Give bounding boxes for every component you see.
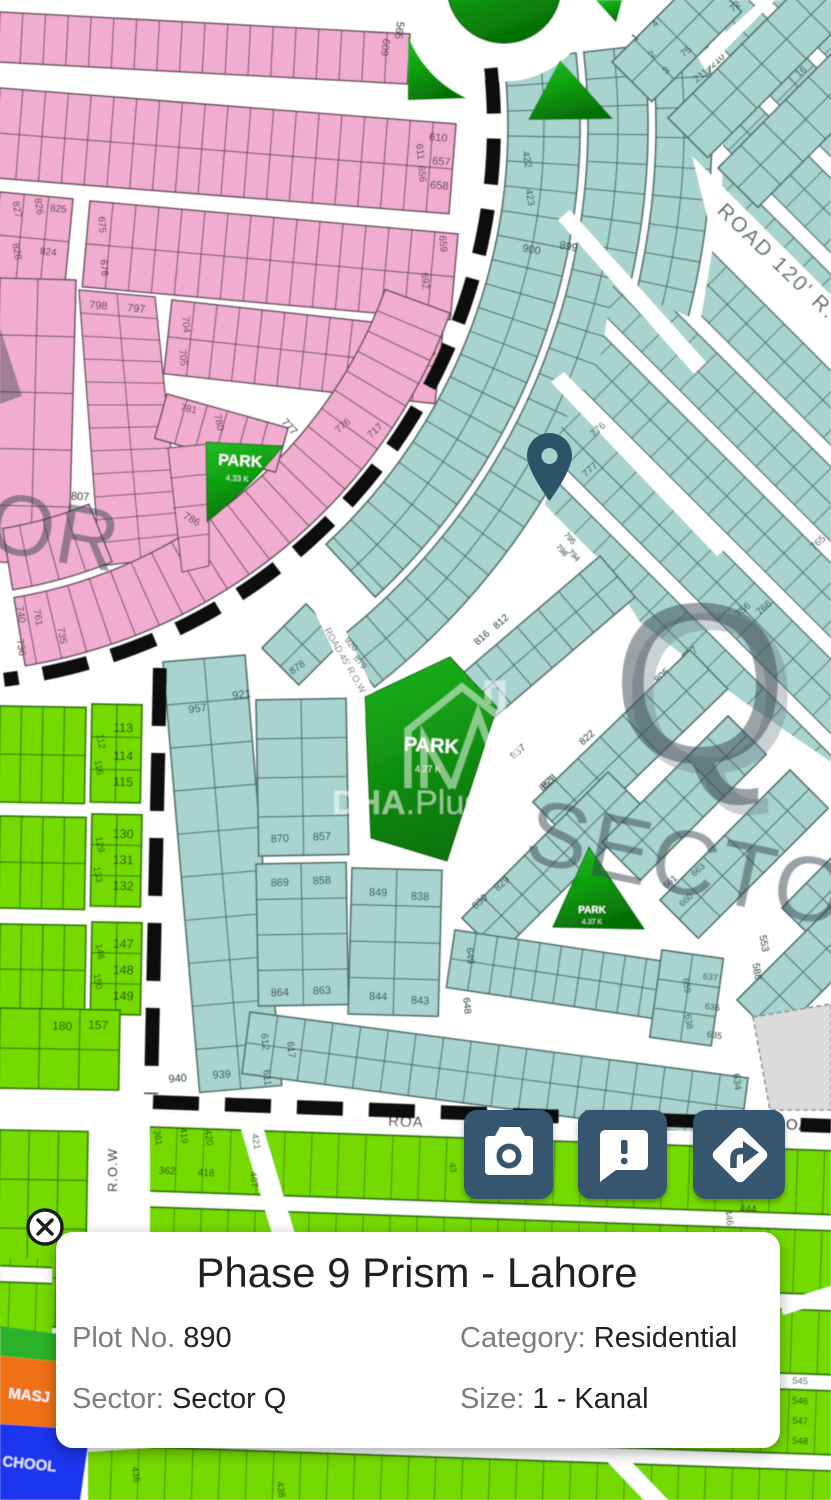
svg-text:609: 609 <box>378 38 392 57</box>
svg-text:617: 617 <box>284 1041 296 1059</box>
svg-text:939: 939 <box>212 1068 231 1082</box>
svg-text:43: 43 <box>447 1162 458 1173</box>
svg-text:637: 637 <box>702 971 718 983</box>
svg-text:547: 547 <box>792 1416 808 1428</box>
svg-text:648: 648 <box>460 997 472 1015</box>
svg-text:588: 588 <box>750 962 764 981</box>
svg-text:R.O.W: R.O.W <box>105 1148 120 1192</box>
svg-text:638: 638 <box>683 1013 695 1029</box>
svg-text:131: 131 <box>112 853 133 868</box>
svg-text:115: 115 <box>113 775 133 790</box>
svg-text:565: 565 <box>392 21 406 40</box>
svg-text:610: 610 <box>429 131 448 145</box>
svg-text:825: 825 <box>49 203 67 215</box>
svg-text:130: 130 <box>112 827 133 842</box>
svg-text:420: 420 <box>202 1129 215 1146</box>
svg-text:864: 864 <box>271 987 290 1000</box>
svg-text:436: 436 <box>129 1466 142 1483</box>
svg-text:446: 446 <box>722 1209 735 1226</box>
svg-text:611: 611 <box>413 143 425 160</box>
svg-text:704: 704 <box>179 316 191 334</box>
svg-text:361: 361 <box>151 1129 164 1146</box>
svg-text:736: 736 <box>14 638 28 657</box>
svg-text:467: 467 <box>247 1171 260 1188</box>
svg-text:870: 870 <box>271 833 290 846</box>
svg-text:418: 418 <box>198 1168 216 1180</box>
svg-text:Sector: Sector Q: Sector: Sector Q <box>72 1383 286 1415</box>
svg-text:4.37 K: 4.37 K <box>582 919 603 926</box>
svg-text:553: 553 <box>757 934 771 953</box>
svg-text:940: 940 <box>168 1072 187 1086</box>
svg-text:113: 113 <box>113 721 133 736</box>
svg-text:857: 857 <box>313 831 332 844</box>
svg-text:157: 157 <box>88 1018 109 1033</box>
svg-text:797: 797 <box>127 302 146 316</box>
svg-text:659: 659 <box>436 235 448 253</box>
svg-text:Category: Residential: Category: Residential <box>460 1322 737 1354</box>
svg-text:798: 798 <box>89 299 108 313</box>
svg-text:649: 649 <box>463 947 475 965</box>
svg-text:659: 659 <box>681 977 693 993</box>
svg-text:114: 114 <box>113 749 133 764</box>
svg-text:844: 844 <box>369 991 388 1004</box>
svg-text:148: 148 <box>112 963 133 978</box>
svg-text:149: 149 <box>112 989 133 1004</box>
svg-text:816: 816 <box>472 628 492 648</box>
svg-text:849: 849 <box>369 887 388 900</box>
svg-text:740: 740 <box>14 605 28 624</box>
svg-text:675: 675 <box>95 216 107 234</box>
svg-text:444: 444 <box>740 1204 758 1216</box>
svg-text:Plot No. 890: Plot No. 890 <box>72 1322 232 1354</box>
svg-text:921: 921 <box>232 688 252 702</box>
svg-text:362: 362 <box>159 1166 177 1178</box>
svg-text:636: 636 <box>704 1001 720 1013</box>
svg-text:548: 548 <box>792 1436 808 1448</box>
svg-text:438: 438 <box>274 1481 287 1498</box>
svg-text:658: 658 <box>430 179 449 193</box>
svg-text:Phase 9 Prism - Lahore: Phase 9 Prism - Lahore <box>196 1249 637 1296</box>
svg-text:147: 147 <box>112 937 133 952</box>
svg-text:PARK: PARK <box>578 905 606 916</box>
svg-text:611: 611 <box>260 1069 272 1086</box>
svg-text:421: 421 <box>249 1133 262 1150</box>
svg-text:419: 419 <box>177 1127 190 1144</box>
svg-text:DHA.Plus: DHA.Plus <box>332 784 481 822</box>
svg-text:705: 705 <box>176 349 188 367</box>
svg-text:634: 634 <box>730 1073 742 1091</box>
svg-text:657: 657 <box>432 155 451 169</box>
svg-text:869: 869 <box>271 877 290 890</box>
svg-text:Size: 1 - Kanal: Size: 1 - Kanal <box>460 1383 649 1415</box>
svg-text:858: 858 <box>313 875 332 888</box>
svg-text:Q: Q <box>611 557 788 811</box>
svg-text:4.33 K: 4.33 K <box>225 473 249 483</box>
svg-text:612: 612 <box>258 1033 270 1051</box>
svg-text:798: 798 <box>554 542 570 558</box>
svg-text:PARK: PARK <box>218 452 263 471</box>
svg-text:824: 824 <box>39 246 57 258</box>
svg-text:863: 863 <box>313 985 332 998</box>
svg-text:676: 676 <box>97 259 109 277</box>
svg-text:635: 635 <box>706 1029 722 1041</box>
svg-text:838: 838 <box>411 891 430 904</box>
svg-text:656: 656 <box>415 165 427 183</box>
svg-text:812: 812 <box>491 612 511 632</box>
svg-text:180: 180 <box>52 1019 73 1034</box>
svg-text:545: 545 <box>792 1376 808 1388</box>
svg-text:692: 692 <box>418 272 430 290</box>
svg-text:843: 843 <box>411 995 430 1008</box>
svg-text:546: 546 <box>792 1396 808 1408</box>
svg-text:132: 132 <box>112 879 133 894</box>
svg-text:957: 957 <box>188 702 208 716</box>
